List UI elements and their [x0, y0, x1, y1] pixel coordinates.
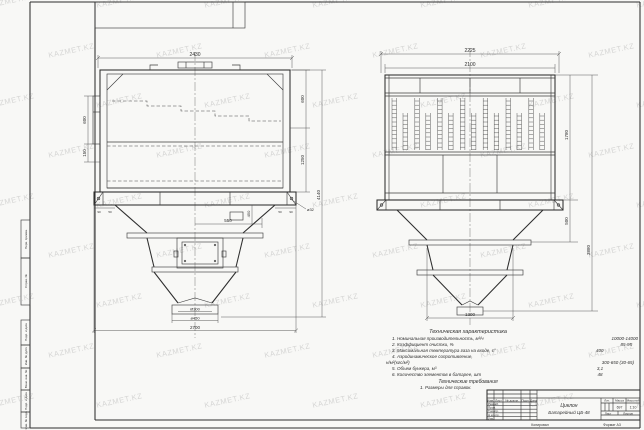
margin-label: Подп. и дата [24, 392, 28, 410]
spec-value: 3,1 [597, 366, 604, 371]
scale-label: Масштаб [627, 399, 640, 403]
document-title: Циклон [560, 403, 577, 409]
door-latch [222, 251, 226, 257]
dim-label: 1300 [465, 312, 476, 317]
copied-note: Копировал [531, 423, 549, 427]
dim-label: 500 [564, 217, 569, 225]
support-flange: 90 50 50 90 ø32 [94, 192, 315, 214]
dim-label: 90 [97, 210, 101, 214]
dim-label: ø450 [190, 316, 200, 321]
dim-label: Ø300 [190, 307, 201, 312]
dim-label: 550 [224, 218, 232, 223]
margin-label: Инв. № дубл. [24, 347, 28, 366]
spec-label: 5. Объем бункера, м³ [392, 366, 437, 371]
inlet-flange [93, 96, 100, 144]
dim-label: 4140 [316, 189, 321, 200]
lit-label: Лит. [604, 399, 610, 403]
spec-label: н/м²(кгс/м²) [386, 360, 410, 365]
dim-label: 1780 [564, 129, 569, 140]
tb-header-cell: № докум. [505, 398, 518, 402]
dim-label: 450 [246, 210, 251, 217]
margin-strips: Перв. примен. Справ. № Подп. и дата Инв.… [21, 220, 30, 429]
dim-label: 3880 [586, 244, 591, 255]
margin-label: Инв. № подл. [24, 410, 28, 429]
spec-value: 300-650 (30-65) [602, 360, 635, 365]
dim-label: 600 [82, 116, 87, 124]
lifting-lug [232, 65, 240, 70]
format-note: Формат А3 [603, 423, 621, 427]
dim-right: 600 1250 4140 [221, 70, 326, 317]
dim-label: 150 [82, 149, 87, 157]
top-left-stamp-cell [95, 2, 245, 28]
title-block: Изм. Лист № докум. Подп. Дата Разраб. Пр… [487, 390, 640, 427]
access-door [177, 238, 223, 268]
dim-label: 90 [289, 210, 293, 214]
dim-label: 2225 [464, 48, 475, 54]
spec-value: 10000-14000 [611, 336, 638, 341]
dim-label: 50 [108, 210, 112, 214]
mass-label: Масса [615, 399, 624, 403]
spec-label: 1. Номинальная производительность, м³/ч [392, 336, 484, 341]
dim-label: 50 [278, 210, 282, 214]
spec-value: 400 [596, 348, 604, 353]
louver-elements [392, 98, 544, 150]
gas-flow-step-line [112, 101, 281, 121]
dim-label: 600 [300, 95, 305, 103]
spec-value: 85-95 [620, 342, 632, 347]
door-hinge [174, 251, 178, 257]
spec-label: 6. Количество элементов в батарее, шт [392, 372, 481, 377]
sheets-label: Листов [623, 411, 633, 415]
document-subtitle: Батарейный ЦБ-48 [548, 409, 590, 415]
margin-label: Взам. инв. № [24, 369, 28, 388]
tech-specs: Техническая характеристика 1. Номинальна… [386, 329, 638, 390]
lifting-lug [150, 65, 158, 70]
scale-value: 1:10 [630, 406, 637, 410]
dim-label-bolt-hole: ø32 [307, 207, 315, 212]
margin-label: Подп. и дата [24, 323, 28, 341]
drawing-sheet: KAZMET.KZKAZMET.KZKAZMET.KZKAZMET.KZKAZM… [0, 0, 644, 430]
margin-label: Справ. № [24, 273, 28, 287]
sheet-frame [30, 2, 640, 428]
dim-label: 2100 [464, 62, 475, 68]
dim-label: 2700 [190, 325, 201, 330]
front-view: 2430 600 [82, 52, 326, 338]
side-view: 2225 2100 [377, 48, 598, 325]
mass-value: 697 [617, 406, 623, 410]
spec-label: 2. Коэффициент очистки, % [391, 342, 454, 347]
spec-value: 48 [597, 372, 603, 377]
engineering-drawing: Перв. примен. Справ. № Подп. и дата Инв.… [0, 0, 644, 430]
tech-requirement: 1. Размеры для справок. [420, 385, 472, 390]
tech-specs-title: Техническая характеристика [429, 329, 507, 335]
fitting [230, 212, 243, 220]
tb-header-cell: Подп. [522, 398, 530, 402]
spec-label: 3. Максимальная температура газа на вход… [392, 348, 496, 353]
tb-header-cell: Дата [530, 398, 537, 402]
louver-slats [392, 98, 544, 150]
dim-left: 600 150 [82, 96, 100, 162]
tb-row-label: Утв. [488, 416, 494, 420]
dim-label: 1250 [300, 154, 305, 165]
margin-label: Перв. примен. [24, 229, 28, 249]
sheet-label: Лист [605, 411, 612, 415]
spec-label: 4. Аэродинамическое сопротивление, [392, 354, 473, 359]
dim-label: 2430 [189, 52, 200, 58]
